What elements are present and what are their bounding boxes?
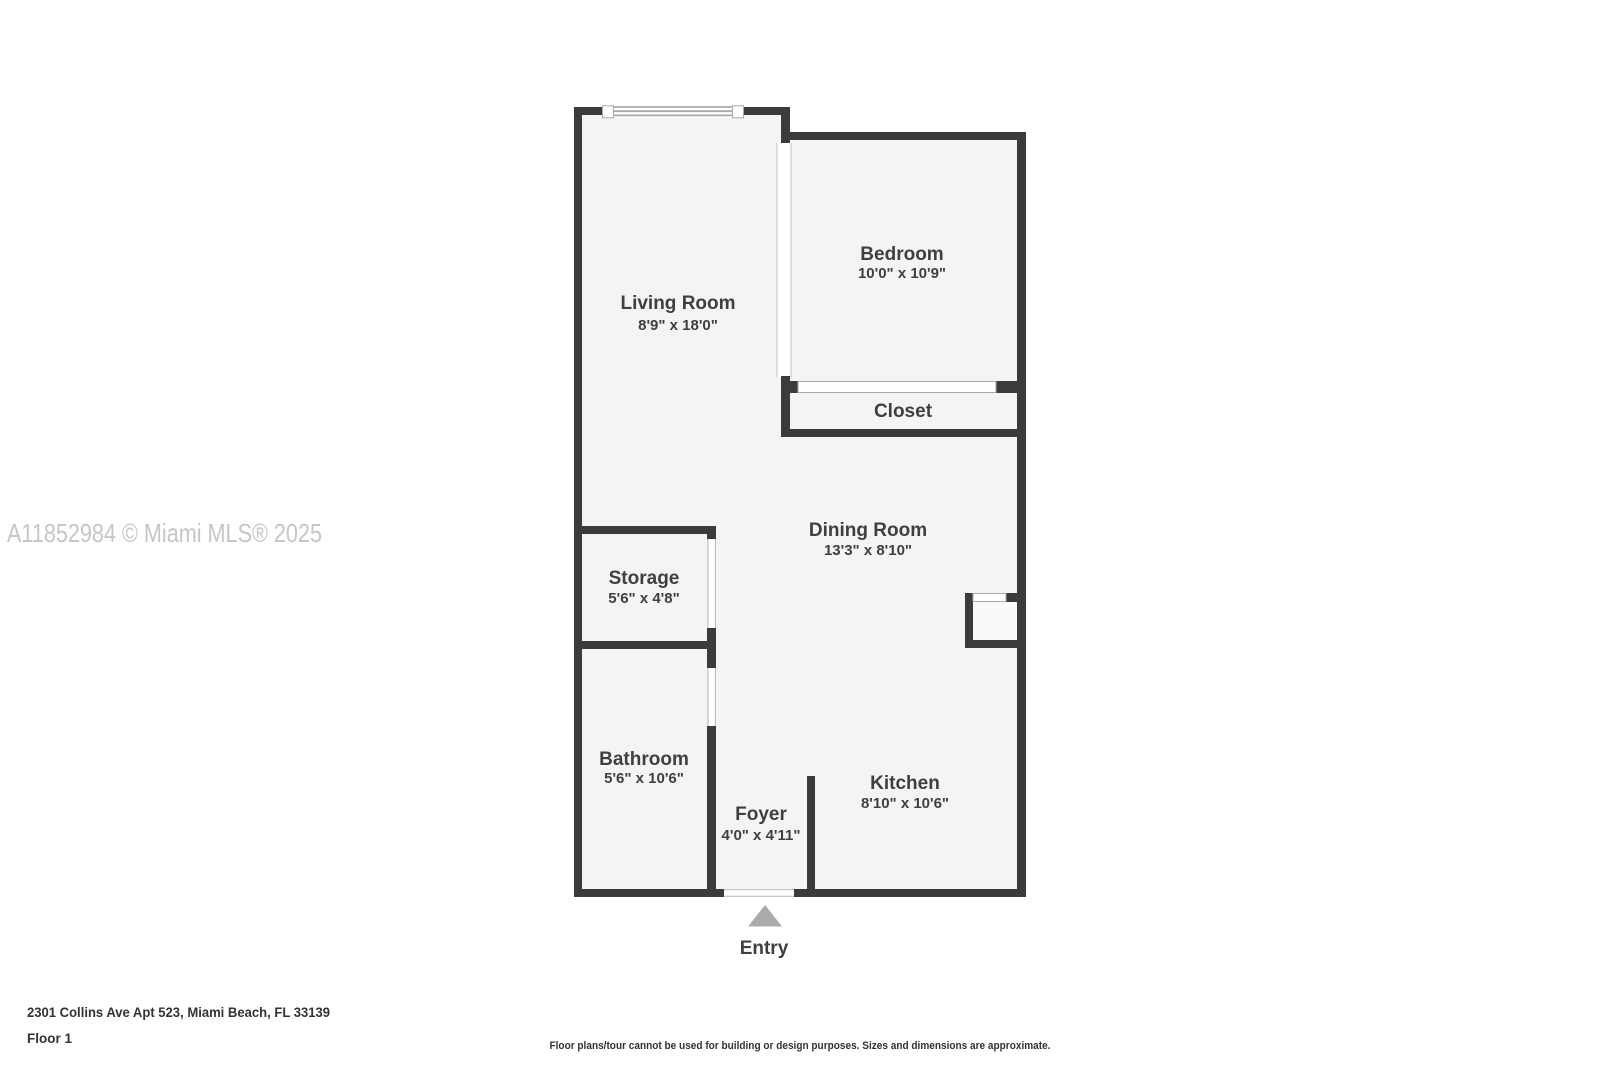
svg-text:8'10" x 10'6": 8'10" x 10'6" — [861, 795, 949, 812]
svg-text:5'6" x 4'8": 5'6" x 4'8" — [608, 590, 679, 607]
svg-text:Foyer: Foyer — [735, 804, 787, 825]
svg-text:5'6" x 10'6": 5'6" x 10'6" — [604, 770, 684, 787]
svg-text:A11852984 © Miami MLS® 2025: A11852984 © Miami MLS® 2025 — [7, 518, 322, 548]
svg-text:2301 Collins Ave Apt 523, Miam: 2301 Collins Ave Apt 523, Miami Beach, F… — [27, 1005, 330, 1020]
svg-text:Entry: Entry — [740, 938, 789, 959]
svg-text:8'9" x 18'0": 8'9" x 18'0" — [638, 317, 718, 334]
svg-text:Bedroom: Bedroom — [860, 244, 943, 265]
svg-text:Floor 1: Floor 1 — [27, 1031, 72, 1046]
svg-text:Kitchen: Kitchen — [870, 773, 940, 794]
svg-text:Storage: Storage — [609, 568, 680, 589]
svg-text:Floor plans/tour cannot be use: Floor plans/tour cannot be used for buil… — [550, 1040, 1051, 1052]
svg-text:4'0" x 4'11": 4'0" x 4'11" — [722, 827, 801, 844]
svg-text:Dining Room: Dining Room — [809, 520, 927, 541]
svg-text:10'0" x 10'9": 10'0" x 10'9" — [858, 265, 946, 282]
svg-text:Closet: Closet — [874, 401, 933, 422]
svg-text:Living Room: Living Room — [620, 293, 735, 314]
svg-text:Bathroom: Bathroom — [599, 749, 689, 770]
svg-text:13'3" x 8'10": 13'3" x 8'10" — [824, 542, 912, 559]
